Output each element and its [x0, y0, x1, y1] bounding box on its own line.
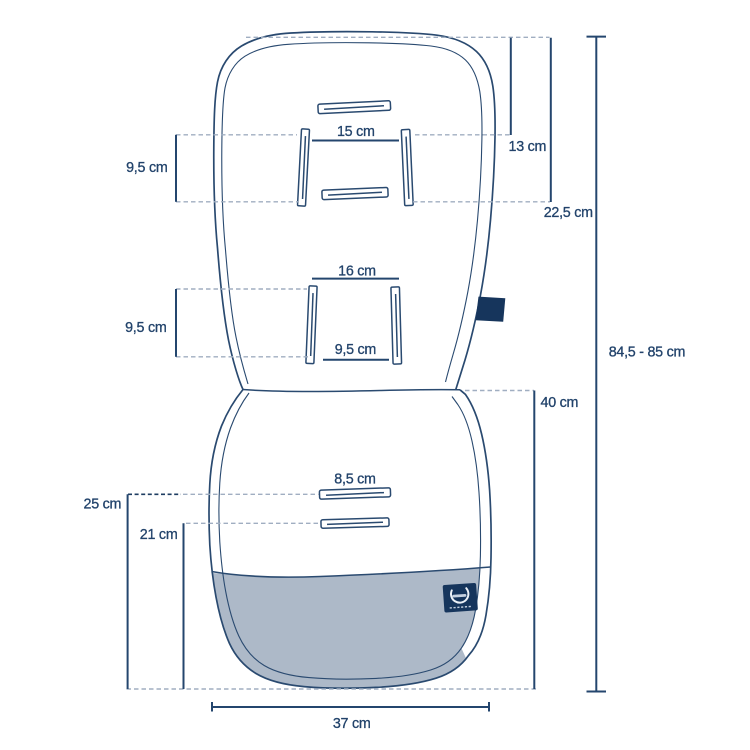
- svg-text:84,5 - 85 cm: 84,5 - 85 cm: [609, 344, 685, 360]
- svg-text:8,5 cm: 8,5 cm: [334, 472, 375, 488]
- svg-text:15 cm: 15 cm: [337, 124, 375, 140]
- svg-text:21 cm: 21 cm: [140, 527, 178, 543]
- svg-text:9,5 cm: 9,5 cm: [335, 342, 376, 358]
- svg-text:13 cm: 13 cm: [509, 139, 547, 155]
- svg-text:9,5 cm: 9,5 cm: [126, 160, 167, 176]
- svg-text:16 cm: 16 cm: [338, 264, 376, 280]
- svg-text:37 cm: 37 cm: [333, 716, 371, 732]
- svg-text:22,5 cm: 22,5 cm: [544, 205, 593, 221]
- svg-text:25 cm: 25 cm: [84, 496, 122, 512]
- svg-text:9,5 cm: 9,5 cm: [125, 320, 166, 336]
- svg-text:40 cm: 40 cm: [541, 395, 579, 411]
